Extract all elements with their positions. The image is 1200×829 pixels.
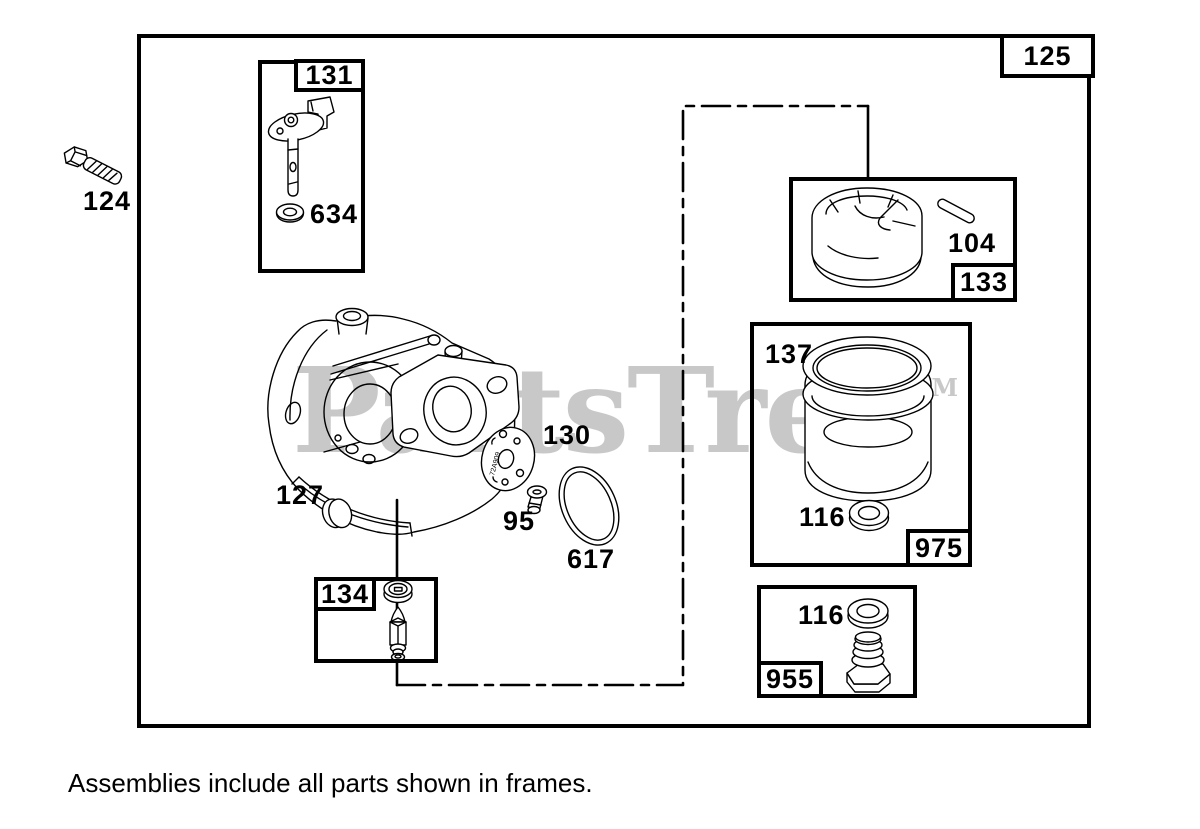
assembly-tag-125: 125 [1000,34,1095,78]
parts-diagram: PartsTreeTM [0,0,1200,829]
part-label-617: 617 [567,546,615,573]
assembly-tag-955: 955 [757,661,823,698]
assembly-tag-975: 975 [906,529,972,567]
bolt-drawing [61,142,125,188]
assembly-tag-133: 133 [951,263,1017,302]
part-label-127: 127 [276,482,324,509]
assembly-tag-134: 134 [314,577,376,611]
part-label-130: 130 [543,422,591,449]
part-label-137: 137 [765,341,813,368]
part-label-116-bowl: 116 [799,504,846,531]
part-label-124: 124 [83,188,131,215]
assembly-tag-131: 131 [294,59,365,92]
part-label-116-drain: 116 [798,602,845,629]
part-label-634: 634 [310,201,358,228]
diagram-caption: Assemblies include all parts shown in fr… [68,768,593,799]
part-label-104: 104 [948,230,996,257]
part-label-95: 95 [503,508,535,535]
